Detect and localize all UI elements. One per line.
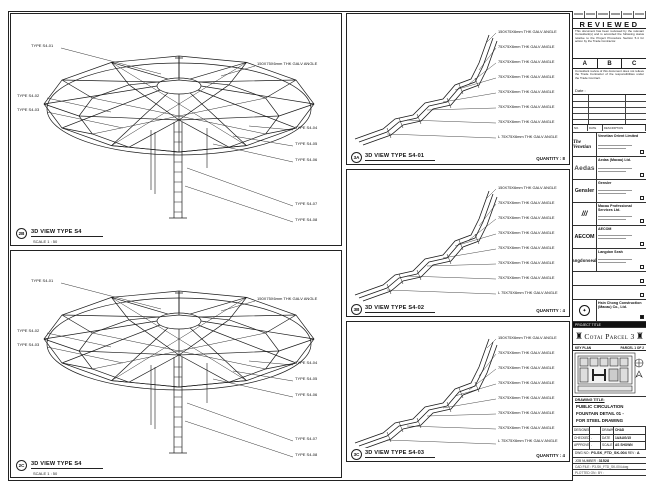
member-label: L 75X75X6mm THK GALV ANGLE [498,291,558,295]
plotted-label: PLOTTED ON : [575,471,597,475]
member-label: 75X75X6mm THK GALV ANGLE [498,45,555,49]
detail-bubble: 3A [351,152,362,163]
cad-file-label: CAD FILE : [575,465,591,469]
company-name: Aedas (Macau) Ltd. [598,159,644,163]
reviewed-body-1: This document has been reviewed by the r… [573,29,646,58]
member-label: 75X75X6mm THK GALV ANGLE [498,366,555,370]
project-banner: ♜ Cotai Parcel 3 ♜ [573,328,646,345]
panel-quantity: QUANTITY : 8 [536,156,565,161]
stamp-checkbox [640,196,645,201]
stamp-checkbox [640,315,645,320]
company-row-empty-2 [573,286,646,300]
member-label: 75X75X6mm THK GALV ANGLE [498,105,555,109]
panel-title: 3D VIEW TYPE S4-01 [365,153,435,161]
callout: TYPE S4-07 [295,202,317,206]
callout: TYPE S4-06 [295,158,317,162]
plotted-row: PLOTTED ON : BY : [573,470,646,476]
title-block: REVIEWED This document has been reviewed… [572,11,646,481]
panel-3d-view-type-s4-top: TYPE S4-01 TYPE S4-02 TYPE S4-03 150X75X… [10,13,342,246]
callout: TYPE S4-01 [31,279,53,283]
designed-label: DESIGNED [573,427,590,434]
dwg-no-row: DWG NO : P3-SK_FTD_SK-004 REV : A [573,450,646,458]
callout: TYPE S4-02 [17,94,39,98]
reviewed-stamp: REVIEWED This document has been reviewed… [573,19,646,133]
stamp-checkbox [640,219,645,224]
member-label: 75X75X6mm THK GALV ANGLE [498,120,555,124]
rev-no-header: NO. [573,125,588,131]
callout: TYPE S4-06 [295,393,317,397]
grade-a: A [573,59,598,68]
company-row-macau-professional: /// Macau Professional Services Ltd. [573,203,646,226]
panel-title: 3D VIEW TYPE S4-02 [365,305,435,313]
member-label: 75X75X6mm THK GALV ANGLE [498,60,555,64]
panel-title: 3D VIEW TYPE S4 [31,461,103,469]
detail-bubble: 2C [16,460,27,471]
company-row-empty-1 [573,272,646,286]
member-label: 75X75X6mm THK GALV ANGLE [498,90,555,94]
drawn-label: DRAWN [601,427,614,434]
revision-table-header: NO. DATE DESCRIPTION [573,125,646,131]
checked-value: - [590,435,601,442]
panel-3d-view-type-s4-03: 150X75X6mm THK GALV ANGLE 75X75X6mm THK … [346,321,570,462]
reviewed-date-label: Date : [573,87,646,95]
panel-title: 3D VIEW TYPE S4-03 [365,450,435,458]
member-label: 75X75X6mm THK GALV ANGLE [498,75,555,79]
tower-icon: ♜ [636,332,644,341]
callout: TYPE S4-05 [295,377,317,381]
panel-3d-view-type-s4-01: 150X75X6mm THK GALV ANGLE 75X75X6mm THK … [346,13,570,165]
detail-bubble: 3B [351,304,362,315]
rev-desc-header: DESCRIPTION [603,125,646,131]
stamp-checkbox [640,150,645,155]
checked-label: CHECKED [573,435,590,442]
member-label: 75X75X6mm THK GALV ANGLE [498,276,555,280]
project-name: Cotai Parcel 3 [584,332,634,341]
company-row-hsin-chong: ✦ Hsin Chong Construction (Macau) Co., L… [573,300,646,322]
callout: TYPE S4-05 [295,142,317,146]
stamp-checkbox [640,173,645,178]
panel-title: 3D VIEW TYPE S4 [31,229,103,237]
member-label: 75X75X6mm THK GALV ANGLE [498,216,555,220]
member-label: 150X75X6mm THK GALV ANGLE [498,30,557,34]
job-number-label: JOB NUMBER : [575,459,598,463]
approved-value: - [590,442,601,449]
company-name: Langdon Seah [598,251,644,255]
callout: TYPE S4-04 [295,126,317,130]
maunsell-logo: /// [582,211,588,218]
stamp-checkbox [640,293,645,298]
dwg-no-label: DWG NO : [575,451,590,455]
callout: TYPE S4-03 [17,108,39,112]
company-row-aedas: Aedas Aedas (Macau) Ltd. [573,157,646,180]
venetian-logo: The Venetian [573,140,596,150]
grade-c: C [622,59,646,68]
drawing-title-box: DRAWING TITLE: PUBLIC CIRCULATION FOUNTA… [573,397,646,427]
rev-date-header: DATE [588,125,603,131]
member-label: 75X75X6mm THK GALV ANGLE [498,246,555,250]
detail-bubble: 2B [16,228,27,239]
callout: TYPE S4-03 [17,343,39,347]
company-name: Gensler [598,182,644,186]
company-row-langdon-seah: langdonseah Langdon Seah [573,249,646,272]
rev-label: REV : [628,451,636,455]
member-label: 75X75X6mm THK GALV ANGLE [498,426,555,430]
detail-bubble: 3C [351,449,362,460]
panel-scale: SCALE 1 : 50 [33,471,57,476]
company-row-gensler: Gensler Gensler [573,180,646,203]
drawing-title-line: FOUNTAIN DETAIL 01 - [573,410,646,417]
reviewed-title: REVIEWED [573,19,646,29]
panel-3d-view-type-s4-bottom: TYPE S4-01 TYPE S4-02 TYPE S4-03 150X75X… [10,250,342,478]
company-name: AECOM [598,228,644,232]
drawn-value: CHAD [614,427,646,434]
job-number-value: 31528 [599,459,610,463]
drawing-sheet: TYPE S4-01 TYPE S4-02 TYPE S4-03 150X75X… [0,0,650,488]
member-label: 75X75X6mm THK GALV ANGLE [498,201,555,205]
langdon-seah-logo: langdonseah [573,258,597,263]
dwg-no-value: P3-SK_FTD_SK-004 [591,451,627,455]
callout: TYPE S4-01 [31,44,53,48]
key-plan-parcel-label: PARCEL 1 OF 2 [621,346,644,349]
key-plan [573,351,646,397]
callout: 150X75X6mm THK GALV ANGLE [257,62,317,66]
member-label: L 75X75X6mm THK GALV ANGLE [498,135,558,139]
company-name: Macau Professional Services Ltd. [598,205,644,213]
member-label: 75X75X6mm THK GALV ANGLE [498,351,555,355]
company-row-venetian: The Venetian Venetian Orient Limited [573,133,646,157]
radial-structure-drawing [11,14,343,231]
key-plan-drawing [573,351,645,395]
angle-assembly-drawing [347,14,571,150]
member-label: 75X75X6mm THK GALV ANGLE [498,411,555,415]
panel-3d-view-type-s4-02: 150X75X6mm THK GALV ANGLE 75X75X6mm THK … [346,169,570,317]
date-value: 14/AUG/15 [614,435,646,442]
reviewed-grades: A B C [573,58,646,69]
gensler-logo: Gensler [575,188,594,194]
panel-scale: SCALE 1 : 50 [33,239,57,244]
member-label: 150X75X6mm THK GALV ANGLE [498,186,557,190]
date-label: DATE [601,435,614,442]
stamp-checkbox [640,242,645,247]
approved-label: APPROVED [573,442,590,449]
key-plan-label: KEY PLAN [575,346,591,349]
drawing-info-table: DESIGNED DRAWN CHAD CHECKED - DATE 14/AU… [573,427,646,450]
member-label: L 75X75X6mm THK GALV ANGLE [498,439,558,443]
radial-structure-drawing [11,251,343,463]
callout: TYPE S4-04 [295,361,317,365]
panel-quantity: QUANTITY : 4 [536,308,565,313]
aecom-logo: AECOM [574,234,594,240]
member-label: 75X75X6mm THK GALV ANGLE [498,231,555,235]
plotted-value: BY : [598,471,604,475]
panel-quantity: QUANTITY : 4 [536,453,565,458]
callout: 150X75X6mm THK GALV ANGLE [257,297,317,301]
aedas-logo: Aedas [574,165,595,172]
tower-icon: ♜ [575,332,583,341]
scale-label: SCALE [601,442,614,449]
company-name: Venetian Orient Limited [598,135,644,139]
member-label: 75X75X6mm THK GALV ANGLE [498,381,555,385]
reviewed-body-2: Consultant review of this document does … [573,69,646,87]
hsin-chong-logo: ✦ [579,305,590,316]
drawing-title-line: FOR STEEL DRAWING [573,417,646,424]
callout: TYPE S4-07 [295,437,317,441]
designed-value [590,427,601,434]
callout: TYPE S4-02 [17,329,39,333]
company-name: Hsin Chong Construction (Macau) Co., Ltd… [598,302,644,310]
stamp-checkbox [640,265,645,270]
member-label: 75X75X6mm THK GALV ANGLE [498,396,555,400]
callout: TYPE S4-08 [295,453,317,457]
reviewed-signature-grid [573,95,646,125]
callout: TYPE S4-08 [295,218,317,222]
rev-value: A [637,451,640,455]
stamp-checkbox [640,279,645,284]
grade-b: B [598,59,623,68]
member-label: 150X75X6mm THK GALV ANGLE [498,336,557,340]
cad-file-value: P3-SK_FTD_SK-004.dwg [592,465,628,469]
scale-value: AS SHOWN [614,442,646,449]
member-label: 75X75X6mm THK GALV ANGLE [498,261,555,265]
drawing-title-line: PUBLIC CIRCULATION [573,403,646,410]
revision-strip [573,11,646,19]
company-row-aecom: AECOM AECOM [573,226,646,249]
